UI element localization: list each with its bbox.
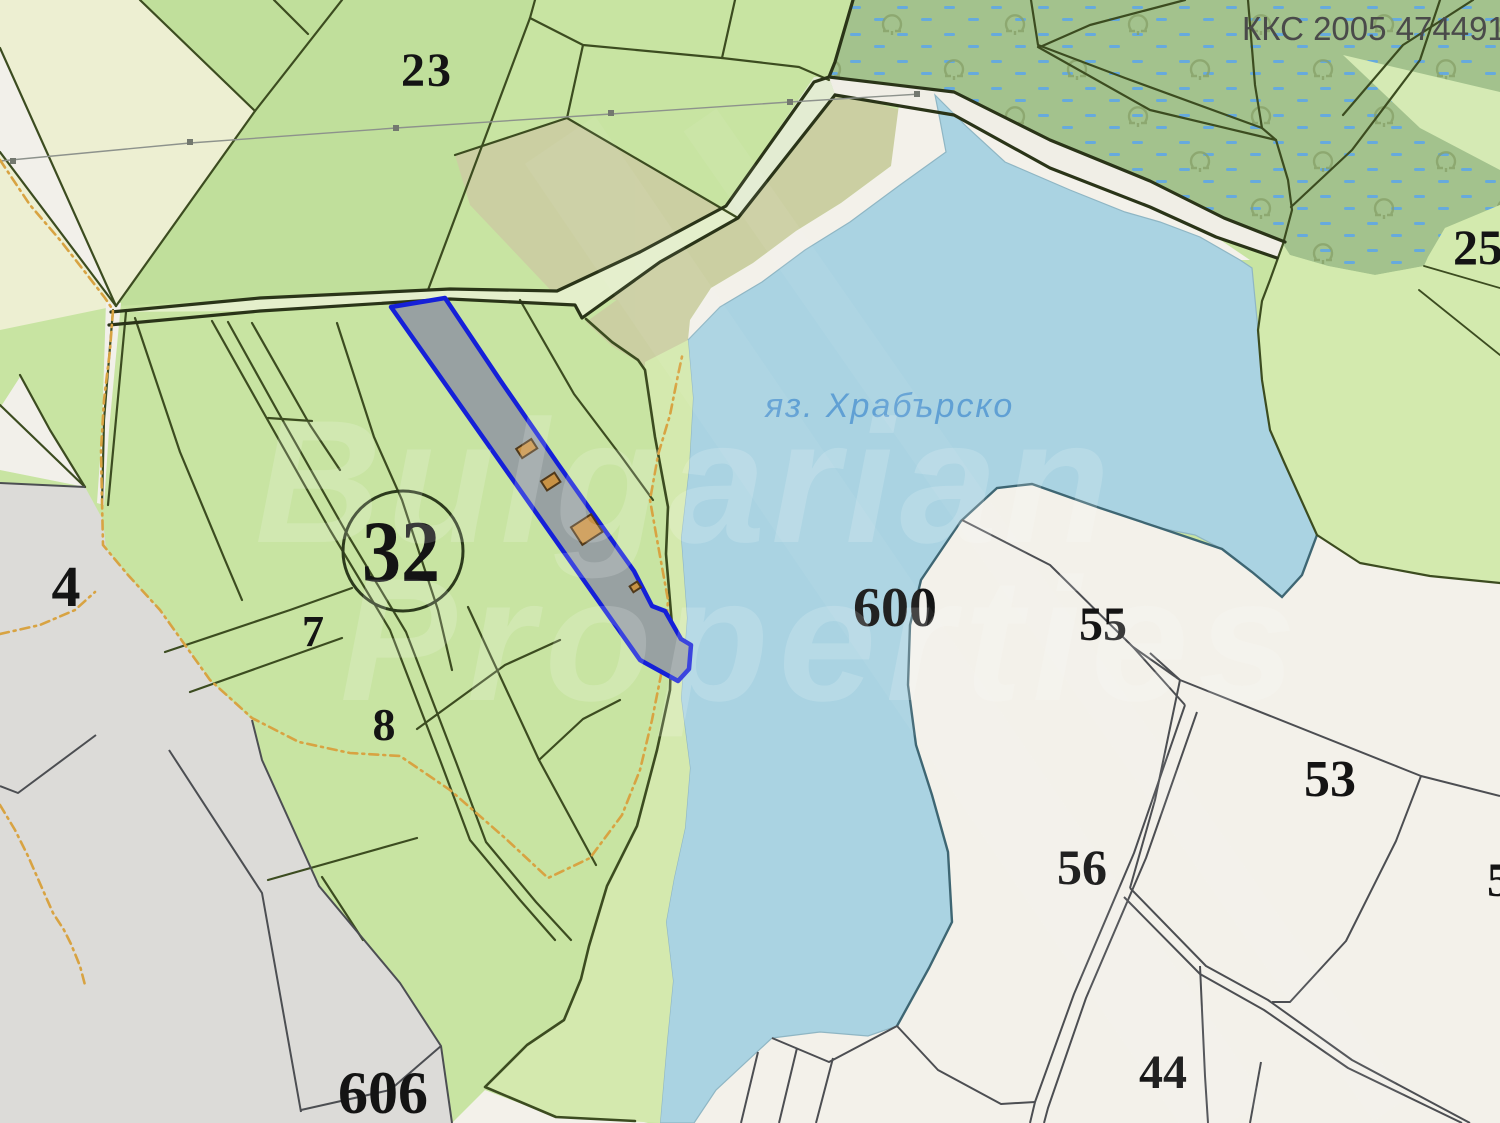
svg-text:23: 23 <box>401 44 453 97</box>
svg-text:53: 53 <box>1304 751 1356 808</box>
svg-text:Properties: Properties <box>340 543 1306 738</box>
svg-text:7: 7 <box>302 607 324 656</box>
svg-text:4: 4 <box>52 554 81 619</box>
svg-text:5: 5 <box>1487 854 1500 907</box>
svg-text:606: 606 <box>338 1060 428 1123</box>
svg-text:25: 25 <box>1453 219 1500 275</box>
svg-text:ККС 2005 474491: ККС 2005 474491 <box>1242 10 1500 47</box>
